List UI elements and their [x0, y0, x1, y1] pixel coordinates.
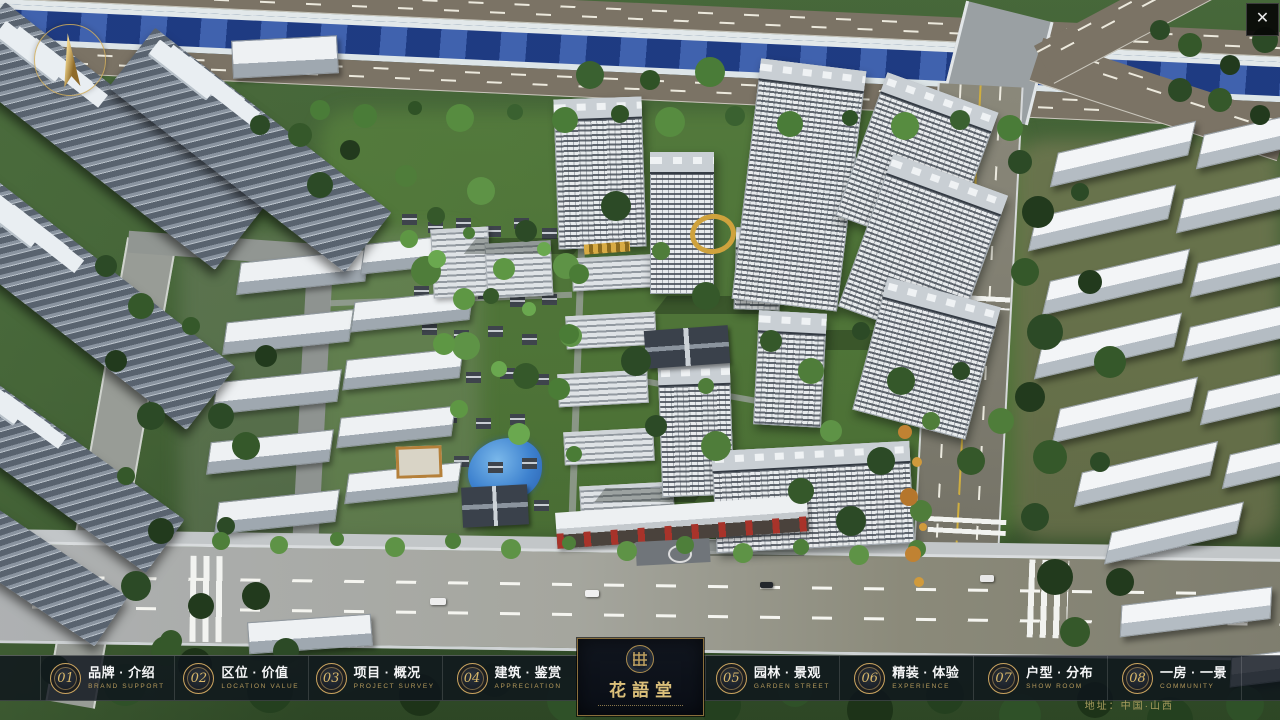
number-badge: 05 [716, 663, 747, 694]
number-badge: 03 [316, 663, 347, 694]
crosswalk [189, 556, 226, 642]
nav-spacer [0, 656, 40, 700]
logo-cell: 花語堂 [576, 656, 706, 700]
seal-emblem-icon [626, 645, 654, 673]
chinese-courtyard-hall [644, 325, 730, 369]
nav-label-en: SHOW ROOM [1026, 683, 1093, 690]
nav-label-zh: 区位 · 价值 [221, 666, 299, 680]
car [430, 598, 446, 605]
tree-cluster [400, 230, 418, 248]
tree-cluster [95, 255, 117, 277]
plaza-ring [668, 545, 692, 563]
nav-item-garden-landscape[interactable]: 05 园林 · 景观GARDEN STREET [705, 656, 839, 700]
project-address: 地址：中国·山西 [1085, 697, 1174, 712]
nav-number: 03 [323, 671, 340, 686]
tree-cluster [1150, 20, 1170, 40]
tower [753, 310, 827, 427]
midrise-slab [563, 428, 655, 466]
nav-number: 05 [723, 671, 740, 686]
nav-label-en: APPRECIATION [495, 683, 562, 690]
tree-cluster [1008, 150, 1032, 174]
logo-subtitle-line [598, 705, 684, 706]
nav-label-en: GARDEN STREET [754, 683, 830, 690]
nav-item-brand-intro[interactable]: 01 品牌 · 介绍BRAND SUPPORT [40, 656, 174, 700]
car [980, 575, 994, 582]
number-badge: 07 [988, 663, 1019, 694]
tree-cluster [760, 330, 782, 352]
nav-label-en: COMMUNITY [1160, 683, 1227, 690]
nav-item-project-survey[interactable]: 03 项目 · 概况PROJECT SURVEY [308, 656, 442, 700]
street-tree-row [212, 532, 230, 550]
nav-label-en: PROJECT SURVEY [354, 683, 435, 690]
nav-item-room-view[interactable]: 08 一房 · 一景COMMUNITY [1107, 656, 1241, 700]
aerial-site-map[interactable] [0, 0, 1280, 720]
nav-label-en: EXPERIENCE [892, 683, 959, 690]
compass-needle-icon [51, 32, 90, 89]
nav-label-zh: 精装 · 体验 [892, 666, 959, 680]
nav-item-floorplan-distribution[interactable]: 07 户型 · 分布SHOW ROOM [973, 656, 1107, 700]
number-badge: 06 [854, 663, 885, 694]
nav-label-zh: 户型 · 分布 [1026, 666, 1093, 680]
autumn-shrubs [898, 425, 912, 439]
residential-slab [231, 35, 339, 78]
nav-spacer [1241, 656, 1280, 700]
nav-item-architecture[interactable]: 04 建筑 · 鉴赏APPRECIATION [442, 656, 576, 700]
nav-number: 02 [191, 671, 208, 686]
seal-pattern [633, 652, 647, 666]
tree-cluster [395, 165, 417, 187]
number-badge: 04 [457, 663, 488, 694]
nav-label-zh: 园林 · 景观 [754, 666, 830, 680]
nav-label-zh: 建筑 · 鉴赏 [495, 666, 562, 680]
nav-number: 07 [995, 671, 1012, 686]
compass-icon[interactable] [34, 24, 106, 96]
nav-number: 04 [464, 671, 481, 686]
entrance-gate [461, 484, 529, 527]
bottom-nav-bar: 01 品牌 · 介绍BRAND SUPPORT 02 区位 · 价值LOCATI… [0, 655, 1280, 701]
nav-number: 06 [861, 671, 878, 686]
clubhouse [395, 445, 442, 479]
project-name: 花語堂 [578, 676, 704, 701]
midrise-slab [557, 370, 649, 408]
project-logo[interactable]: 花語堂 [577, 638, 705, 716]
car [585, 590, 599, 597]
nav-label-en: LOCATION VALUE [221, 683, 299, 690]
number-badge: 01 [50, 663, 81, 694]
close-icon: ✕ [1256, 10, 1269, 27]
villa-roof-ridges [402, 218, 417, 220]
nav-item-location-value[interactable]: 02 区位 · 价值LOCATION VALUE [174, 656, 308, 700]
nav-item-interior-experience[interactable]: 06 精装 · 体验EXPERIENCE [839, 656, 973, 700]
presentation-window: ✕ 01 品牌 · 介绍BRAND SUPPORT 02 区位 · 价值LOCA… [0, 0, 1280, 720]
nav-label-zh: 品牌 · 介绍 [88, 666, 165, 680]
tree-cluster [250, 115, 270, 135]
tree-cluster [310, 100, 330, 120]
number-badge: 02 [183, 663, 214, 694]
nav-label-zh: 一房 · 一景 [1160, 666, 1227, 680]
nav-label-zh: 项目 · 概况 [354, 666, 435, 680]
crosswalk [1027, 559, 1070, 638]
close-button[interactable]: ✕ [1246, 3, 1279, 36]
nav-label-en: BRAND SUPPORT [88, 683, 165, 690]
car [760, 582, 773, 588]
nav-number: 01 [57, 671, 74, 686]
nav-number: 08 [1129, 671, 1146, 686]
tower [553, 97, 646, 250]
number-badge: 08 [1122, 663, 1153, 694]
wide-tower [711, 441, 914, 553]
